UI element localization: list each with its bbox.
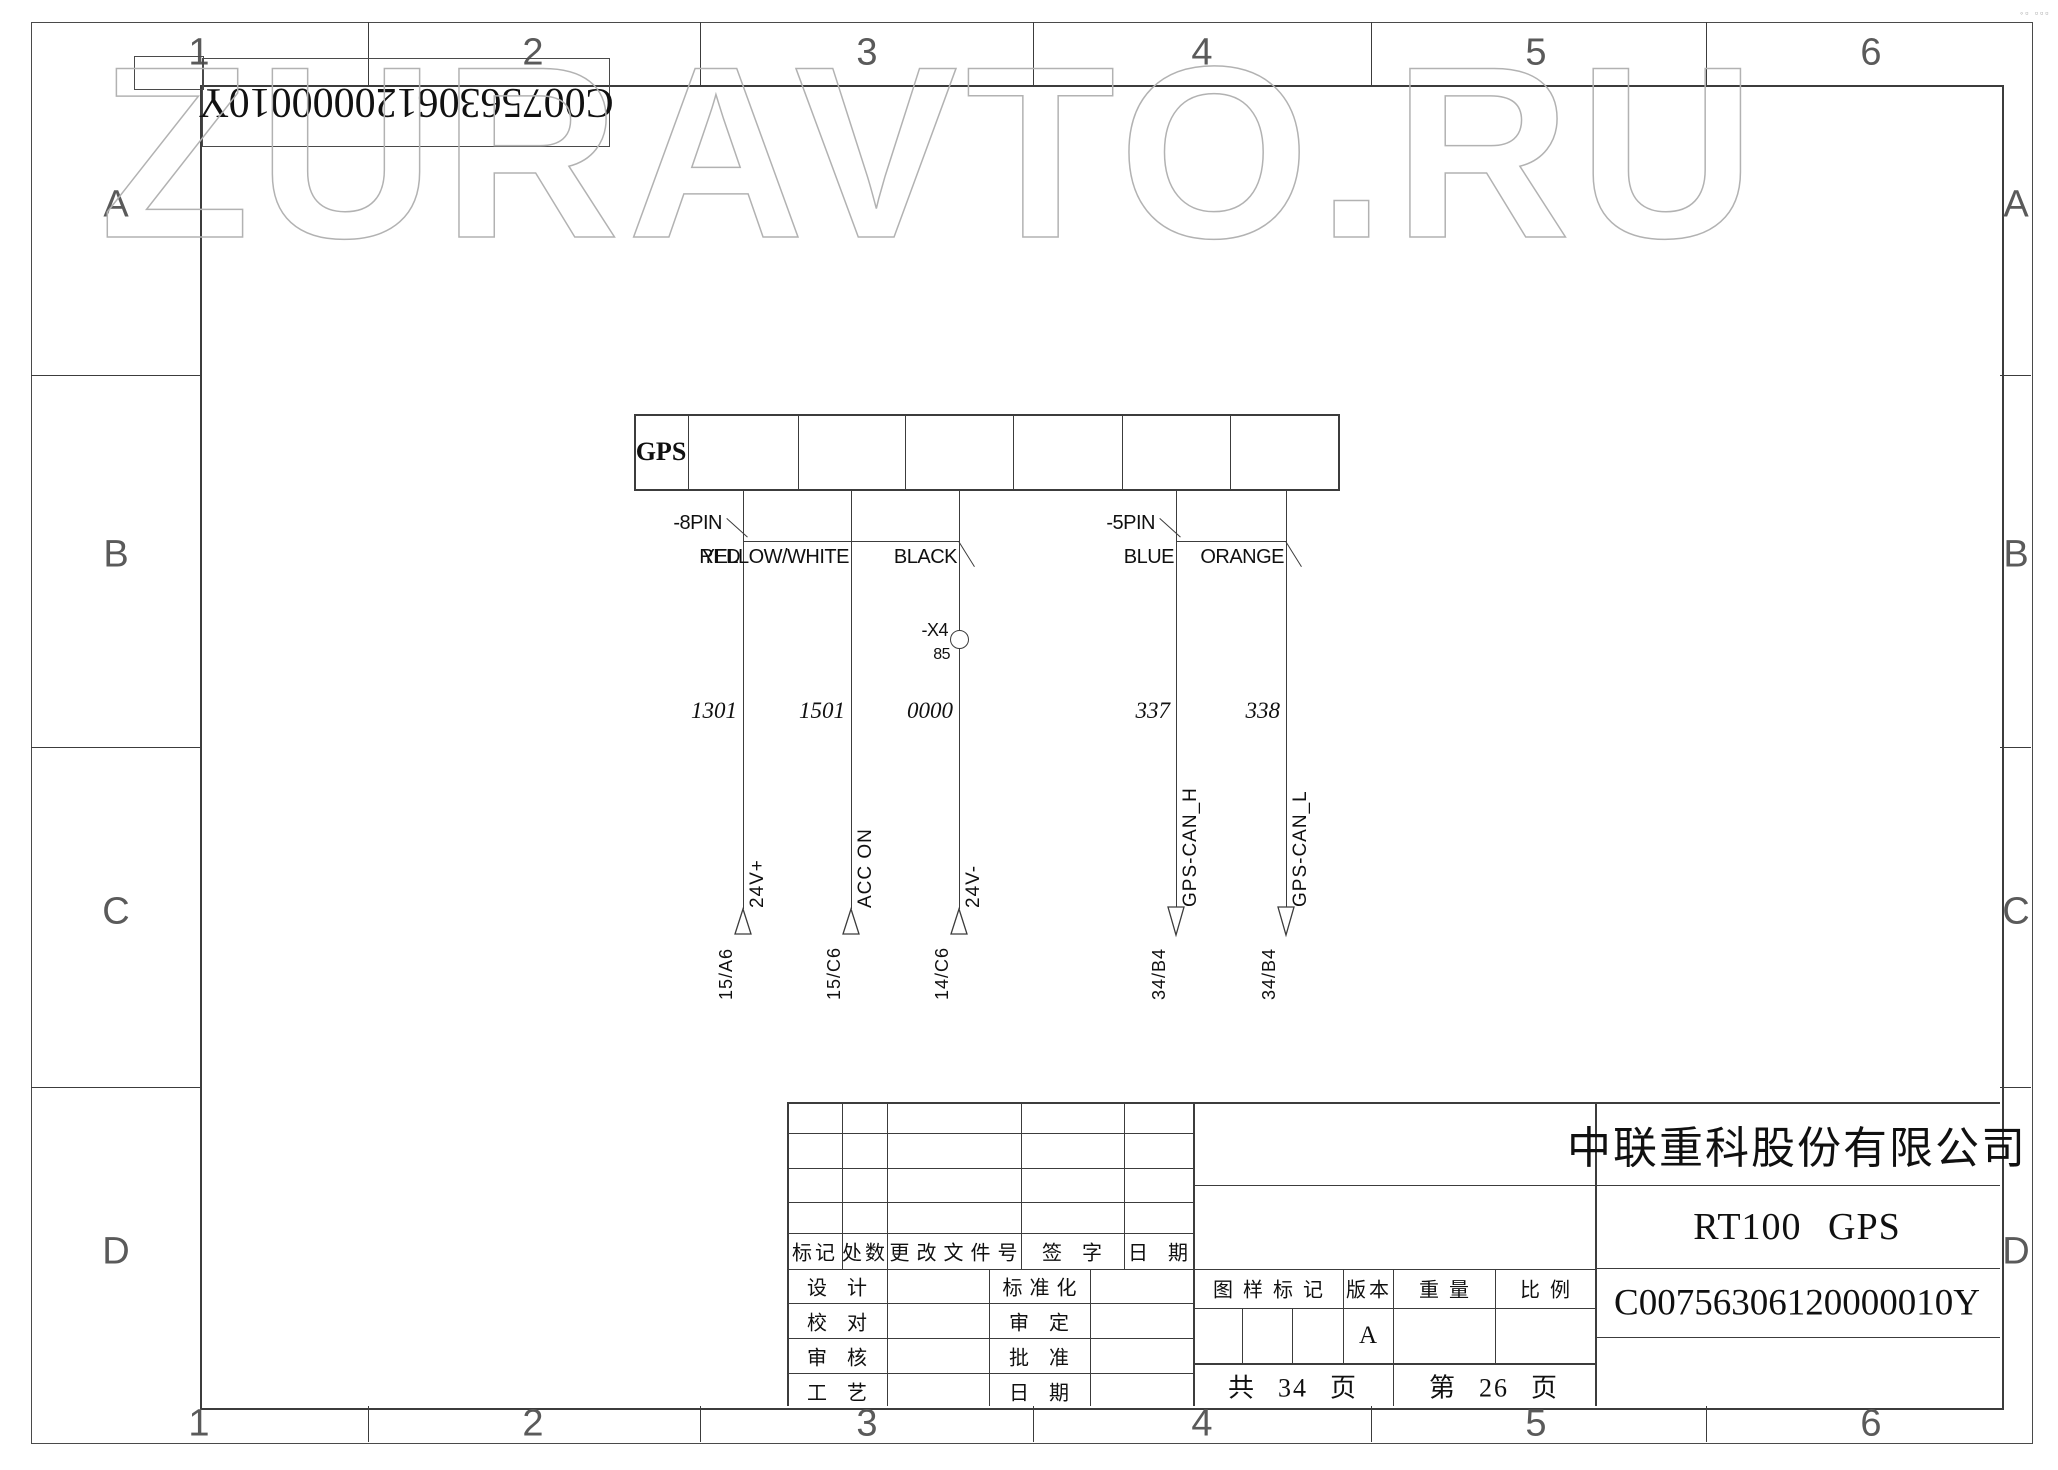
titleblock-line (787, 1202, 1193, 1203)
pages-total-suffix: 页 (1330, 1373, 1358, 1403)
zone-tick (1706, 22, 1707, 85)
wire-number: 1301 (637, 698, 737, 724)
wire-ref-label: 15/A6 (716, 938, 740, 1000)
wire-ref-label: 14/C6 (932, 938, 956, 1000)
terminal-arrow-up-icon (950, 908, 968, 935)
titleblock-line (787, 1303, 1193, 1304)
gps-cell-divider (1122, 414, 1123, 491)
x4-splice-point (950, 630, 969, 649)
gps-cell-divider (798, 414, 799, 491)
sign-label: 批准 (1009, 1342, 1089, 1371)
zone-label-bottom: 3 (856, 1403, 877, 1446)
wire-orange (1286, 491, 1287, 907)
zone-tick (1033, 22, 1034, 85)
row-tick (2000, 375, 2031, 376)
wire-color-label: ORANGE (1144, 546, 1284, 569)
titleblock-line (1193, 1185, 2000, 1186)
row-label-left: D (102, 1231, 129, 1274)
signal-label: ACC ON (855, 815, 879, 908)
zone-tick (700, 22, 701, 85)
row-tick (31, 1087, 200, 1088)
titleblock-line (787, 1102, 789, 1406)
zone-label-bottom: 1 (188, 1403, 209, 1446)
titleblock-line (1595, 1337, 2000, 1338)
titleblock-line (1292, 1308, 1293, 1363)
gps-cell-divider (1230, 414, 1231, 491)
zone-tick (700, 1406, 701, 1442)
titleblock-line (1124, 1102, 1125, 1269)
pages-total-prefix: 共 (1228, 1373, 1256, 1403)
drawing-sheet: ZURAVTO.RU 1 2 3 4 5 6 1 2 3 4 5 6 A B C… (0, 0, 2058, 1470)
sign-label: 审核 (807, 1342, 887, 1371)
company-name: 中联重科股份有限公司 (1567, 1112, 2027, 1176)
zone-label-top: 4 (1191, 32, 1212, 75)
zone-label-top: 6 (1860, 32, 1881, 75)
connector-5pin-bracket (1176, 541, 1286, 542)
terminal-arrow-up-icon (842, 908, 860, 935)
wire-color-label: BLACK (857, 546, 957, 569)
wire-black (959, 491, 960, 909)
titleblock-line (787, 1233, 1193, 1234)
signal-label: GPS-CAN_H (1180, 783, 1204, 907)
wire-color-label: YELLOW/WHITE (699, 546, 849, 569)
terminal-arrow-down-icon (1277, 906, 1295, 936)
zone-label-bottom: 5 (1525, 1403, 1546, 1446)
row-label-right: C (2002, 891, 2029, 934)
sign-label: 校对 (807, 1307, 887, 1336)
zone-label-top: 3 (856, 32, 877, 75)
connector-8pin-bracket (743, 541, 959, 542)
row-label-left: B (103, 534, 128, 577)
gps-device-label: GPS (636, 437, 687, 467)
titleblock-line (787, 1269, 1595, 1270)
titleblock-line (1242, 1308, 1243, 1363)
row-tick (31, 375, 200, 376)
row-tick (31, 747, 200, 748)
corner-ref-number-box: C00756306120000010Y (202, 58, 610, 147)
corner-ref-number: C00756306120000010Y (203, 59, 609, 146)
gps-cell-divider (905, 414, 906, 491)
faint-stamp: ◦▫ ▫▫▫ (2020, 8, 2050, 18)
x4-pin-label: 85 (880, 646, 950, 664)
signal-label: 24V+ (747, 828, 771, 908)
gps-cell-divider (688, 414, 689, 491)
spec-header: 图样标记 (1213, 1274, 1333, 1303)
titleblock-line (1193, 1363, 1595, 1365)
connector-8pin-label: -8PIN (602, 512, 722, 535)
gps-cell-divider (1013, 414, 1014, 491)
revision-header: 处数 (842, 1237, 888, 1266)
sign-label: 审定 (1009, 1307, 1089, 1336)
version-value: A (1359, 1322, 1377, 1350)
x4-connector-label: -X4 (868, 620, 948, 641)
revision-header: 标记 (792, 1237, 838, 1266)
sign-label: 工艺 (807, 1377, 887, 1406)
sign-label: 标准化 (1003, 1272, 1084, 1301)
sign-label: 设计 (807, 1272, 887, 1301)
connector-5pin-label: -5PIN (1035, 512, 1155, 535)
zone-tick (1371, 22, 1372, 85)
row-label-right: A (2003, 184, 2028, 227)
terminal-arrow-up-icon (734, 908, 752, 935)
titleblock-line (787, 1373, 1193, 1374)
sign-label: 日期 (1009, 1377, 1089, 1406)
spec-header: 重量 (1419, 1274, 1479, 1303)
titleblock-line (787, 1168, 1193, 1169)
zone-label-bottom: 4 (1191, 1403, 1212, 1446)
row-tick (2000, 1087, 2031, 1088)
titleblock-line (787, 1338, 1193, 1339)
zone-tick (1706, 1406, 1707, 1442)
wire-ref-label: 34/B4 (1149, 938, 1173, 1000)
wire-ref-label: 15/C6 (824, 938, 848, 1000)
corner-ref-small-box (134, 56, 204, 90)
titleblock-line (1595, 1268, 2000, 1269)
zone-label-bottom: 2 (522, 1403, 543, 1446)
wire-number: 0000 (853, 698, 953, 724)
signal-label: 24V- (963, 826, 987, 908)
pages-total: 共34页 (1228, 1368, 1358, 1405)
product-name: RT100 GPS (1693, 1205, 1901, 1249)
revision-header: 更改文件号 (890, 1237, 1025, 1266)
drawing-number: C00756306120000010Y (1614, 1282, 1980, 1325)
row-label-right: B (2003, 534, 2028, 577)
titleblock-line (787, 1102, 2000, 1104)
pages-total-num: 34 (1278, 1374, 1308, 1403)
terminal-arrow-down-icon (1167, 906, 1185, 936)
wire-number: 337 (1070, 698, 1170, 724)
titleblock-line (787, 1133, 1193, 1134)
titleblock-line (1193, 1308, 1595, 1309)
page-current-suffix: 页 (1531, 1373, 1559, 1403)
zone-tick (368, 1406, 369, 1442)
gps-device-block (634, 414, 1340, 491)
spec-header: 比例 (1520, 1274, 1580, 1303)
page-current-prefix: 第 (1429, 1373, 1457, 1403)
row-tick (2000, 747, 2031, 748)
wire-number: 338 (1180, 698, 1280, 724)
zone-label-bottom: 6 (1860, 1403, 1881, 1446)
row-label-right: D (2002, 1231, 2029, 1274)
spec-header: 版本 (1346, 1274, 1392, 1303)
row-label-left: C (102, 891, 129, 934)
wire-number: 1501 (745, 698, 845, 724)
revision-header: 日期 (1128, 1237, 1208, 1266)
zone-tick (1371, 1406, 1372, 1442)
revision-header: 签字 (1042, 1237, 1122, 1266)
titleblock-line (1393, 1269, 1394, 1406)
signal-label: GPS-CAN_L (1290, 783, 1314, 907)
zone-label-top: 5 (1525, 32, 1546, 75)
zone-tick (1033, 1406, 1034, 1442)
titleblock-line (1343, 1269, 1344, 1363)
row-label-left: A (103, 184, 128, 227)
wire-yellow-white (851, 491, 852, 909)
wire-ref-label: 34/B4 (1259, 938, 1283, 1000)
page-current: 第26页 (1429, 1368, 1559, 1405)
page-current-num: 26 (1479, 1374, 1509, 1403)
titleblock-line (1495, 1269, 1496, 1363)
